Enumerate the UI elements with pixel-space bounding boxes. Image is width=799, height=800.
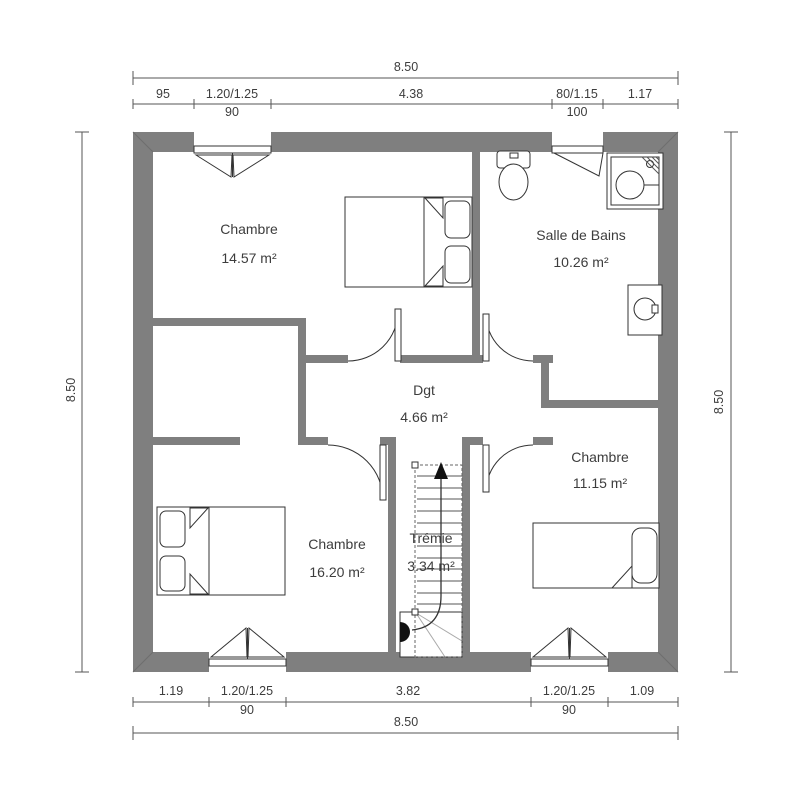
room-name-chambre-right: Chambre <box>571 449 629 465</box>
dim-bottom-seg-3: 1.20/1.25 <box>543 684 595 698</box>
room-area-chambre-top-left: 14.57 m² <box>221 250 276 266</box>
door-bedroom-top-left <box>348 309 401 361</box>
room-area-bathroom: 10.26 m² <box>553 254 608 270</box>
dim-right-overall: 8.50 <box>712 390 726 414</box>
dim-bottom-sill-0: 90 <box>240 703 254 717</box>
dim-bottom-seg-1: 1.20/1.25 <box>221 684 273 698</box>
window-bathroom <box>552 146 603 176</box>
dim-bottom-seg-4: 1.09 <box>630 684 654 698</box>
shower-icon <box>607 153 663 209</box>
dim-top-sill-0: 90 <box>225 105 239 119</box>
dim-left-overall: 8.50 <box>64 378 78 402</box>
dim-top-sill-1: 100 <box>567 105 588 119</box>
door-bedroom-bottom-left <box>328 445 386 500</box>
room-name-chambre-bottom-left: Chambre <box>308 536 366 552</box>
dim-top-seg-0: 95 <box>156 87 170 101</box>
dim-top-seg-3: 80/1.15 <box>556 87 598 101</box>
room-name-tremie: Trémie <box>409 530 452 546</box>
room-area-tremie: 3.34 m² <box>407 558 454 574</box>
double-bed-top <box>345 197 472 287</box>
door-bedroom-right <box>483 445 533 492</box>
dim-top-seg-2: 4.38 <box>399 87 423 101</box>
room-name-chambre-top-left: Chambre <box>220 221 278 237</box>
room-area-chambre-right: 11.15 m² <box>573 475 627 491</box>
floor-plan-drawing <box>0 0 799 800</box>
room-area-chambre-bottom-left: 16.20 m² <box>309 564 364 580</box>
dim-top-overall: 8.50 <box>394 60 418 74</box>
dim-bottom-sill-1: 90 <box>562 703 576 717</box>
window-bottom-right <box>531 628 608 666</box>
toilet-icon <box>497 151 530 200</box>
room-name-bathroom: Salle de Bains <box>536 227 626 243</box>
dim-bottom-seg-0: 1.19 <box>159 684 183 698</box>
dim-bottom-seg-2: 3.82 <box>396 684 420 698</box>
room-area-hallway: 4.66 m² <box>400 409 447 425</box>
door-bathroom <box>483 314 533 361</box>
window-bottom-left <box>209 628 286 666</box>
dim-top-seg-1: 1.20/1.25 <box>206 87 258 101</box>
floor-plan: Chambre 14.57 m² Salle de Bains 10.26 m²… <box>0 0 799 800</box>
single-bed <box>533 523 659 588</box>
dim-top-seg-4: 1.17 <box>628 87 652 101</box>
washing-machine-icon <box>628 285 662 335</box>
double-bed-bottom <box>157 507 285 595</box>
window-top-left <box>194 146 271 177</box>
room-name-hallway: Dgt <box>413 382 435 398</box>
dim-bottom-overall: 8.50 <box>394 715 418 729</box>
